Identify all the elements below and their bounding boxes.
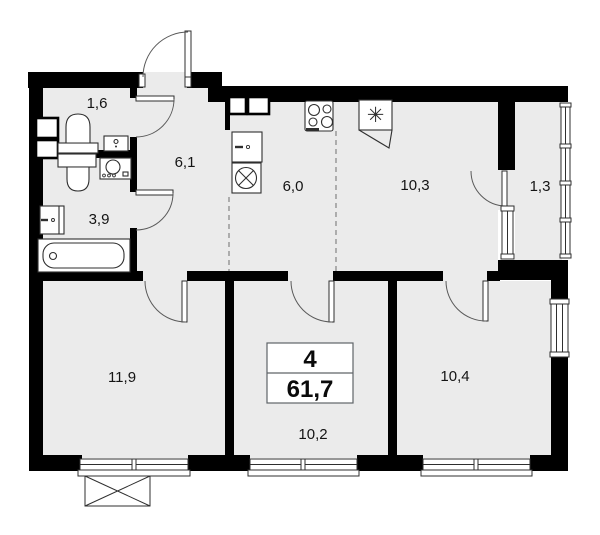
room-label-kitchen: 6,0 — [283, 178, 304, 195]
window-mullion — [132, 459, 136, 470]
window-mullion — [560, 254, 571, 258]
rooms-count: 4 — [303, 346, 317, 373]
bathtub-icon — [38, 239, 130, 272]
room-label-loggia: 1,3 — [530, 178, 551, 195]
entrance-door-arc — [143, 32, 188, 77]
room-label-wc: 1,6 — [87, 95, 108, 112]
wall-room-divider-left — [225, 281, 234, 455]
total-area: 61,7 — [287, 376, 334, 403]
room-label-room-center: 10,2 — [298, 426, 327, 443]
floor-door-opening-center — [288, 271, 333, 281]
wall-mid-4 — [487, 271, 500, 281]
window-mullion — [560, 103, 571, 107]
window-cap — [501, 206, 514, 211]
window-sill — [248, 470, 359, 476]
window-right — [551, 302, 568, 355]
wall-bottom-3 — [357, 455, 423, 471]
wc-sink-icon — [104, 136, 128, 151]
bathroom-door-leaf — [136, 190, 173, 195]
window-cap — [550, 352, 569, 357]
entrance-door-leaf — [185, 31, 191, 77]
room-label-bathroom: 3,9 — [89, 211, 110, 228]
window-mullion — [560, 144, 571, 148]
vent-shaft-icon — [229, 97, 246, 114]
wall-mid-2 — [187, 271, 288, 281]
wall-room-divider-right — [388, 281, 397, 455]
wall-sink-icon — [40, 206, 64, 234]
floor-door-opening-left — [143, 271, 187, 281]
wall-top-left — [28, 72, 143, 88]
window-sill — [421, 470, 532, 476]
floor-wc-door-opening — [130, 98, 137, 137]
vent-shaft-icon — [36, 140, 58, 158]
window-cap — [501, 254, 514, 259]
window-mullion — [560, 181, 571, 185]
wc-door-leaf — [136, 96, 174, 101]
kitchen-sink-icon — [232, 132, 262, 162]
stove-icon — [305, 101, 333, 131]
balcony-icon — [85, 476, 150, 506]
summary-box: 4 61,7 — [267, 343, 353, 403]
window-sill — [78, 470, 190, 476]
window-mullion — [301, 459, 305, 470]
fridge-snowflake: ✳ — [367, 103, 385, 127]
vent-shaft-icon — [36, 118, 58, 138]
window-mullion — [474, 459, 478, 470]
wall-mid-3 — [333, 271, 443, 281]
floor-door-opening-right — [443, 271, 487, 281]
wall-loggia-bottom — [498, 260, 568, 280]
room-center-door-leaf — [329, 281, 334, 322]
room-label-hallway: 6,1 — [175, 154, 196, 171]
washing-machine-icon — [100, 158, 131, 179]
floor-entrance-opening — [143, 72, 187, 88]
room-label-room-left: 11,9 — [108, 369, 136, 386]
floor-hallway — [137, 88, 210, 273]
loggia-door-leaf — [502, 171, 507, 207]
room-right-door-leaf — [483, 281, 488, 321]
wall-loggia-partition — [498, 102, 515, 170]
floor-plan: ✳ 1,6 6,1 3,9 6,0 10,3 1,3 11,9 10,2 10,… — [0, 0, 600, 535]
entrance-door-post — [139, 74, 145, 87]
wall-bottom-2 — [188, 455, 250, 471]
window-cap — [550, 299, 569, 304]
wall-right-lower — [551, 355, 568, 458]
kitchen-basin-icon — [232, 163, 261, 193]
floor-bath-door-opening — [130, 192, 137, 228]
vent-shaft-icon — [248, 97, 269, 114]
wall-bottom-1 — [29, 455, 82, 471]
window-mullion — [560, 218, 571, 222]
room-left-door-leaf — [182, 281, 187, 322]
room-label-room-right: 10,4 — [440, 368, 469, 385]
room-label-room-top: 10,3 — [400, 177, 429, 194]
